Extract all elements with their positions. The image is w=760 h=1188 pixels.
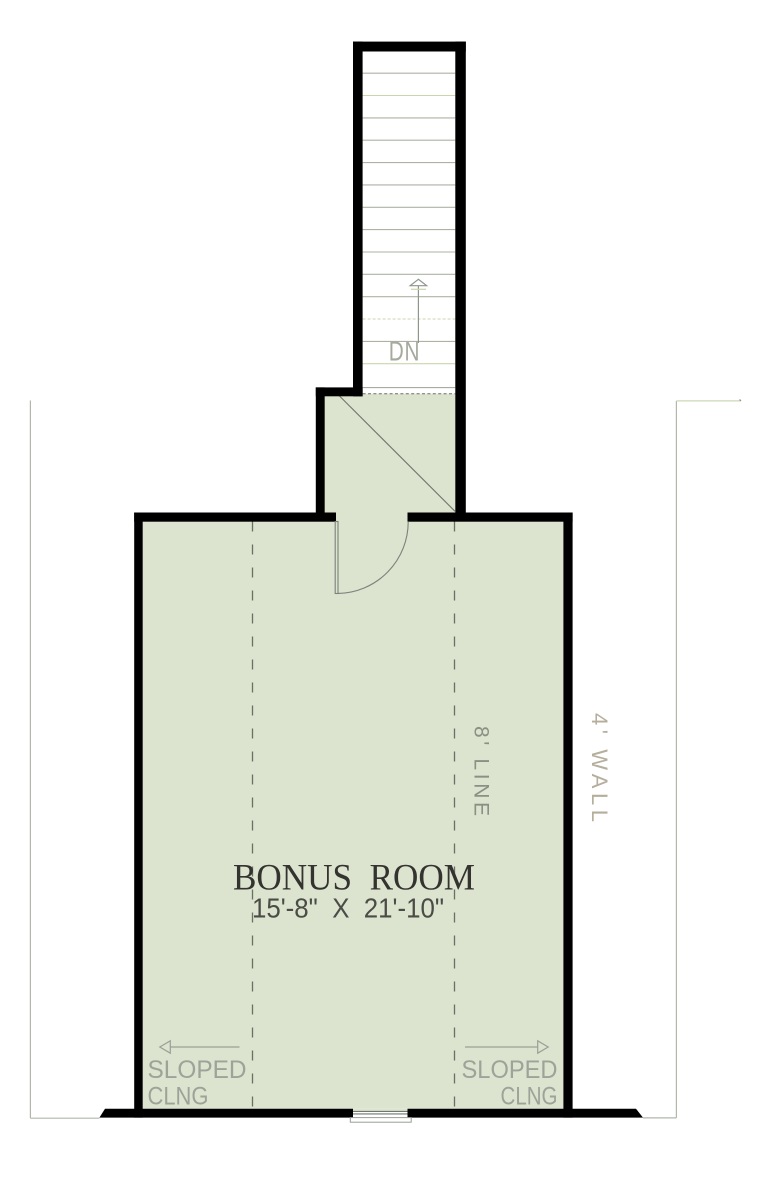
svg-text:CLNG: CLNG <box>148 1083 209 1111</box>
svg-text:SLOPED: SLOPED <box>148 1056 247 1084</box>
svg-text:SLOPED: SLOPED <box>462 1056 558 1084</box>
svg-text:CLNG: CLNG <box>501 1083 558 1111</box>
svg-text:DN: DN <box>389 336 421 367</box>
svg-text:15'-8" X 21'-10": 15'-8" X 21'-10" <box>252 893 444 924</box>
